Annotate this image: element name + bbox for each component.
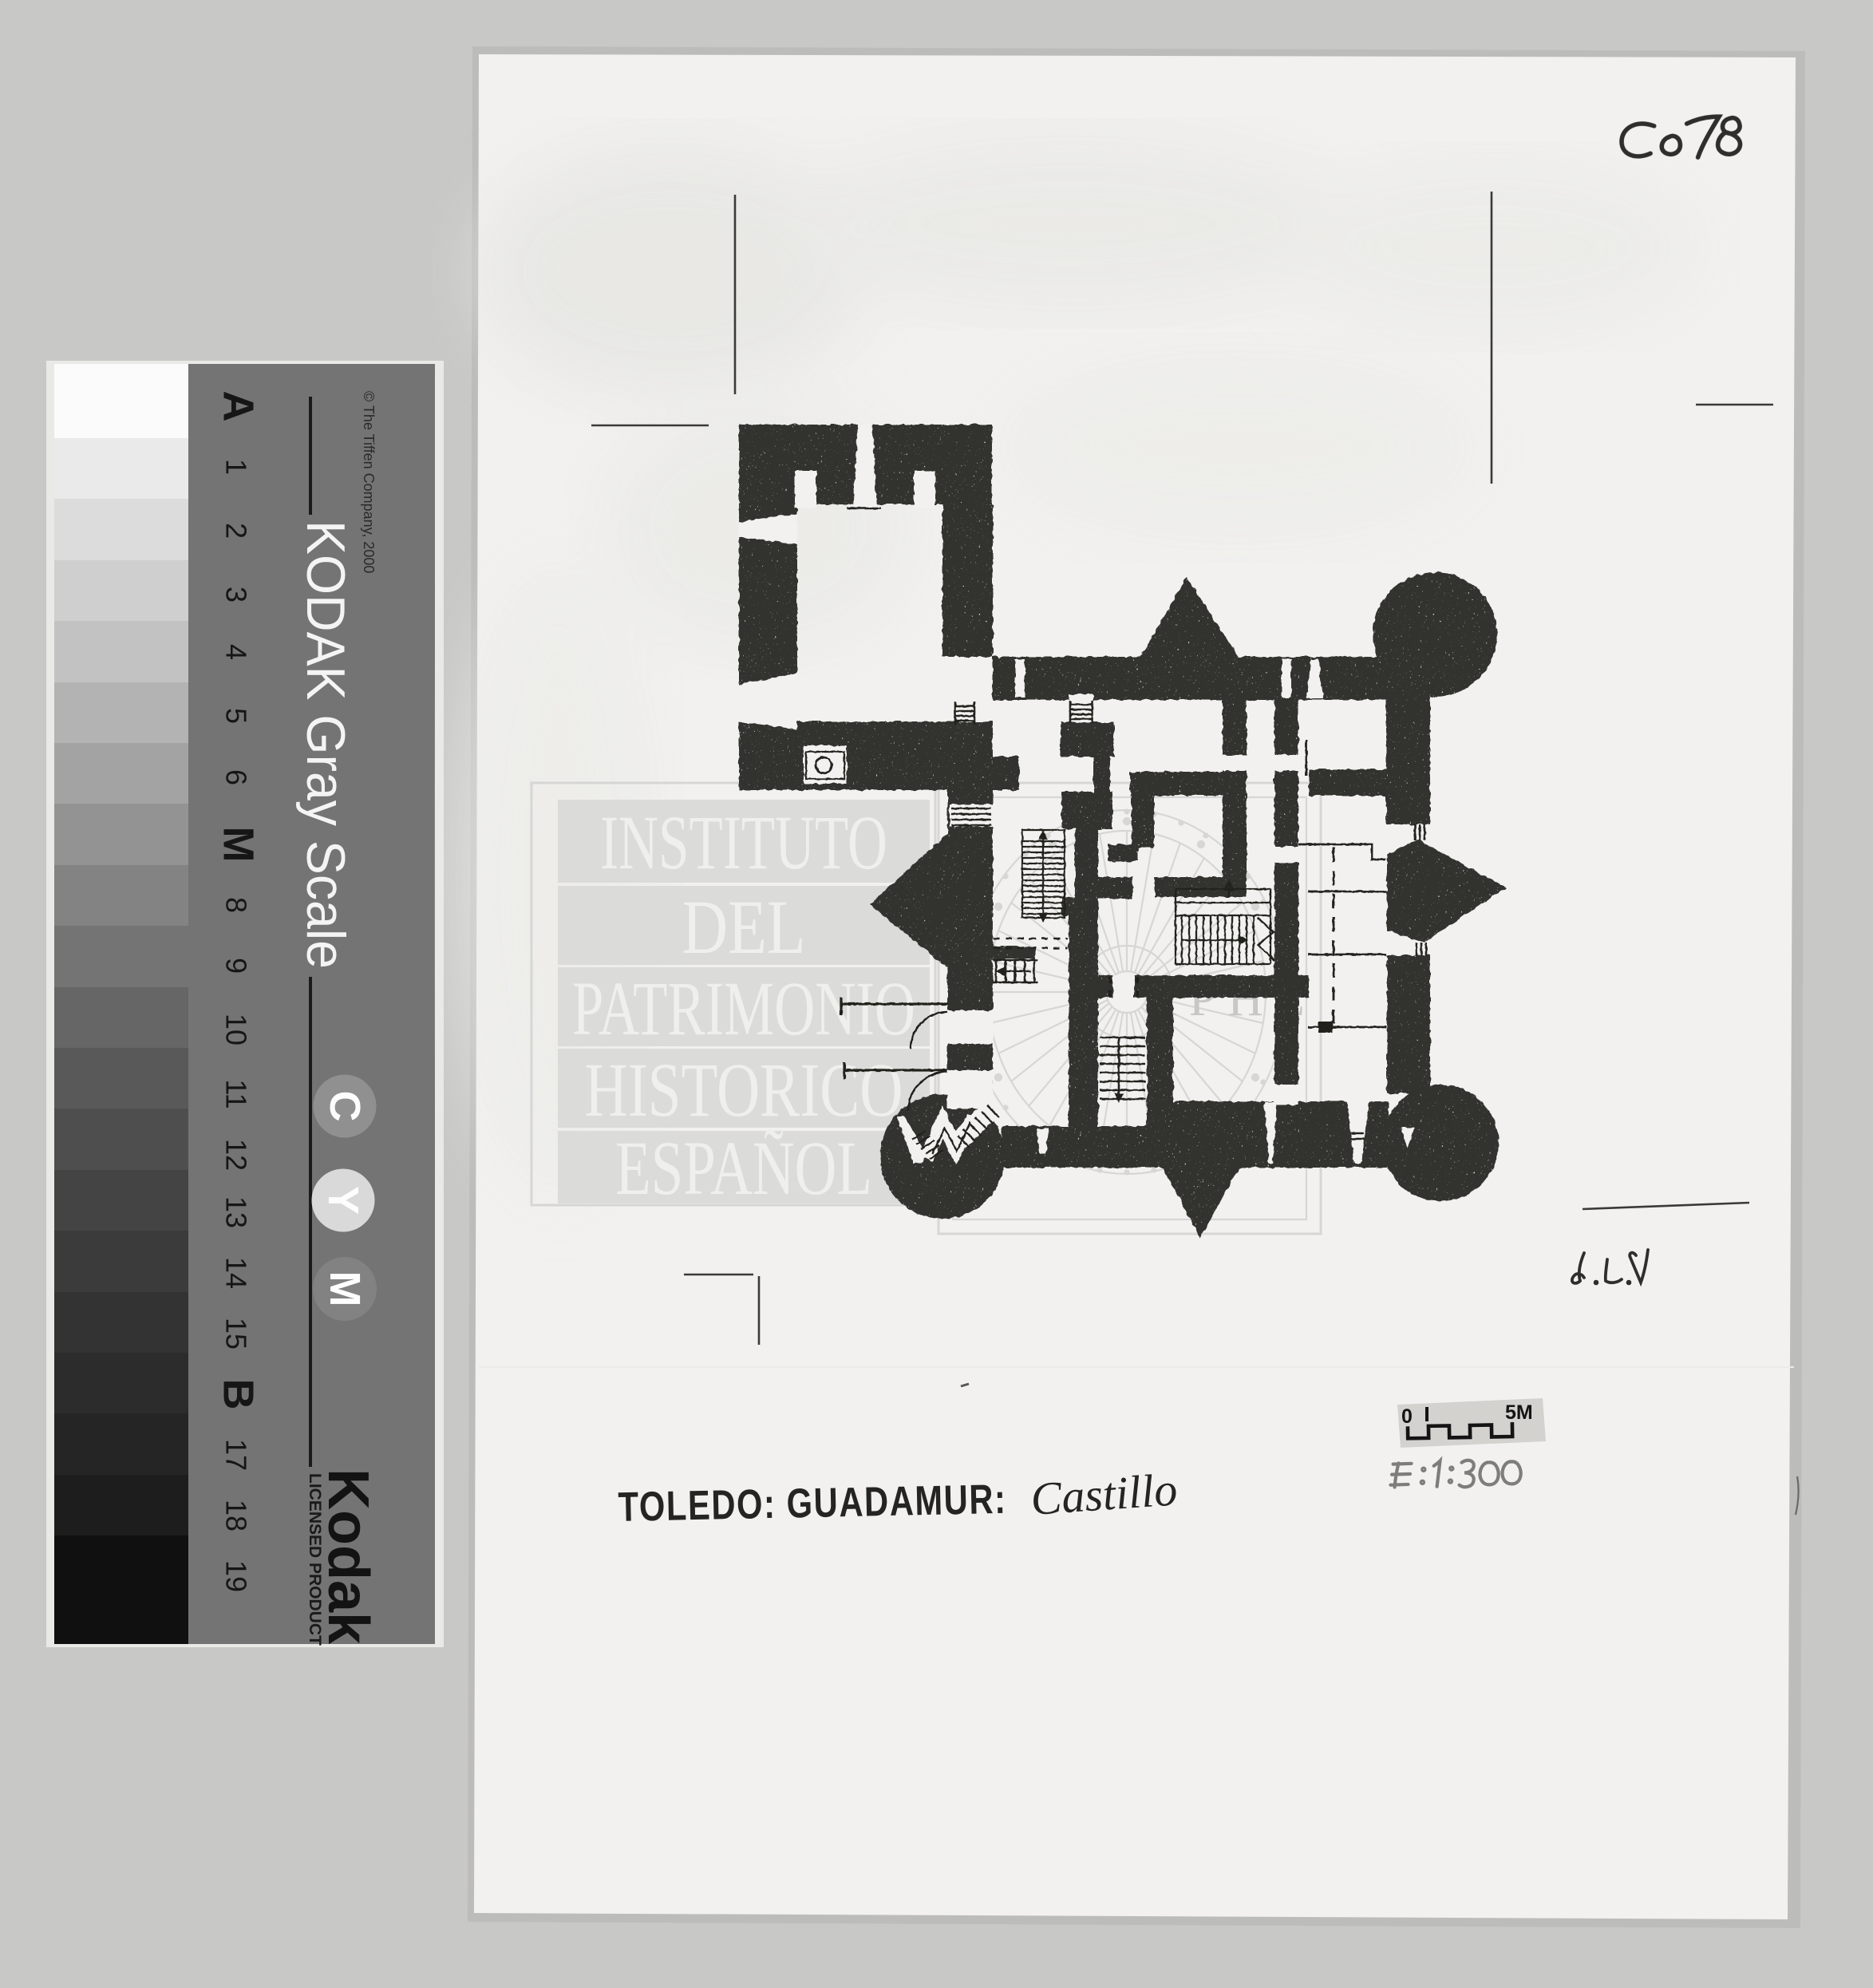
svg-text:DEL: DEL: [682, 884, 806, 970]
svg-text:TOLEDO: GUADAMUR:: TOLEDO: GUADAMUR:: [618, 1476, 1007, 1531]
svg-text:14: 14: [219, 1257, 252, 1289]
svg-text:HISTORICO: HISTORICO: [585, 1047, 903, 1132]
svg-text:© The Tiffen Company, 2000: © The Tiffen Company, 2000: [361, 391, 377, 573]
svg-text:1: 1: [219, 459, 252, 475]
svg-text:A: A: [215, 391, 263, 422]
svg-text:12: 12: [219, 1139, 252, 1171]
svg-text:KODAK Gray Scale: KODAK Gray Scale: [295, 520, 356, 969]
svg-text:11: 11: [219, 1079, 252, 1109]
svg-text:5: 5: [219, 708, 252, 724]
svg-text:15: 15: [219, 1318, 252, 1350]
svg-text:B: B: [215, 1379, 263, 1410]
svg-text:17: 17: [219, 1439, 252, 1471]
svg-text:8: 8: [219, 897, 252, 913]
svg-text:0: 0: [1401, 1405, 1413, 1428]
svg-text:M: M: [321, 1271, 369, 1307]
svg-text:4: 4: [219, 644, 252, 660]
svg-text:M: M: [215, 827, 263, 863]
svg-text:6: 6: [219, 769, 252, 785]
svg-text:18: 18: [219, 1500, 252, 1532]
svg-text:PATRIMONIO: PATRIMONIO: [572, 966, 915, 1051]
svg-text:INSTITUTO: INSTITUTO: [600, 800, 887, 885]
svg-text:2: 2: [219, 523, 252, 539]
svg-text:C: C: [321, 1091, 369, 1122]
svg-text:10: 10: [219, 1014, 252, 1045]
svg-text:Y: Y: [319, 1186, 367, 1215]
svg-text:LICENSED PRODUCT: LICENSED PRODUCT: [306, 1473, 324, 1646]
svg-text:5M: 5M: [1505, 1401, 1533, 1424]
svg-text:19: 19: [219, 1560, 252, 1592]
svg-text:ESPAÑOL: ESPAÑOL: [615, 1125, 872, 1211]
svg-text:Castillo: Castillo: [1029, 1463, 1179, 1525]
svg-text:9: 9: [219, 958, 252, 974]
svg-text:Kodak: Kodak: [316, 1468, 380, 1645]
svg-text:13: 13: [219, 1196, 252, 1228]
svg-text:3: 3: [219, 587, 252, 603]
